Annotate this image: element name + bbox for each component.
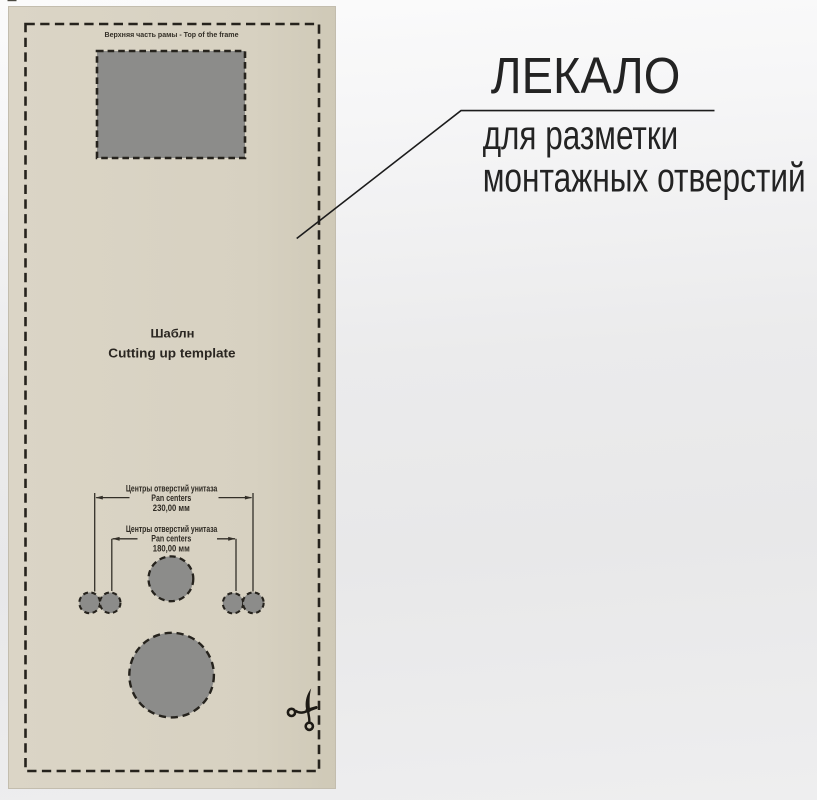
svg-text:для разметки: для разметки: [483, 112, 679, 158]
svg-text:Pan centers: Pan centers: [151, 493, 191, 503]
svg-text:Центры отверстий унитаза: Центры отверстий унитаза: [126, 484, 218, 494]
svg-text:Cutting up template: Cutting up template: [108, 346, 235, 360]
svg-text:Pan centers: Pan centers: [151, 534, 191, 544]
svg-text:ЛЕКАЛО: ЛЕКАЛО: [491, 47, 681, 104]
svg-text:180,00 мм: 180,00 мм: [153, 543, 190, 553]
svg-text:монтажных отверстий: монтажных отверстий: [483, 155, 806, 201]
svg-text:Шаблн: Шаблн: [151, 327, 195, 341]
svg-text:Центры отверстий унитаза: Центры отверстий унитаза: [126, 524, 218, 534]
svg-text:230,00 мм: 230,00 мм: [153, 503, 190, 513]
svg-text:Верхняя часть рамы - Top of th: Верхняя часть рамы - Top of the frame: [105, 30, 239, 39]
